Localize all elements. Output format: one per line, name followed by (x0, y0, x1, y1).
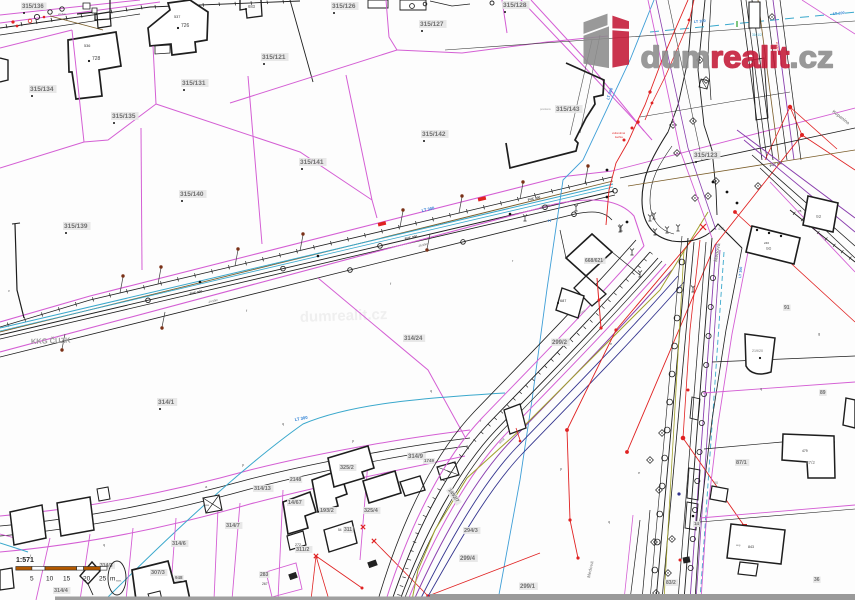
svg-text:90: 90 (766, 246, 772, 252)
svg-text:325/2: 325/2 (340, 465, 354, 471)
svg-text:92: 92 (816, 214, 822, 220)
svg-text:315/126: 315/126 (332, 3, 356, 10)
svg-text:q: q (282, 421, 284, 426)
svg-text:20: 20 (83, 576, 91, 583)
svg-text:314/7: 314/7 (226, 523, 240, 529)
svg-text:311/2: 311/2 (296, 547, 309, 553)
svg-text:726: 726 (181, 23, 190, 29)
svg-text:311: 311 (344, 527, 352, 533)
svg-text:q: q (760, 386, 762, 391)
svg-text:315/141: 315/141 (300, 159, 324, 166)
svg-text:314/24: 314/24 (404, 336, 423, 342)
svg-text:843: 843 (748, 545, 754, 549)
svg-text:3101/2: 3101/2 (752, 33, 762, 37)
svg-text:1749: 1749 (424, 458, 435, 463)
svg-text:87/2: 87/2 (806, 460, 815, 465)
svg-text:povolená: povolená (540, 107, 551, 111)
svg-text:314/1: 314/1 (158, 399, 175, 406)
svg-text:315/134: 315/134 (30, 86, 54, 93)
svg-text:10: 10 (46, 576, 54, 583)
svg-text:14/67: 14/67 (288, 500, 302, 506)
svg-text:315/121: 315/121 (262, 54, 286, 61)
svg-text:537: 537 (174, 15, 180, 19)
svg-text:91: 91 (784, 305, 790, 311)
svg-text:vodoměrná: vodoměrná (612, 131, 626, 135)
svg-text:q: q (608, 519, 610, 524)
svg-text:314/9: 314/9 (408, 454, 424, 460)
svg-text:dumrealit.cz: dumrealit.cz (300, 306, 388, 326)
svg-text:272: 272 (295, 543, 301, 547)
svg-text:vrt.řkm: vrt.řkm (58, 12, 66, 16)
svg-text:83/2: 83/2 (666, 580, 676, 586)
svg-text:89: 89 (820, 390, 826, 396)
svg-text:5: 5 (30, 576, 34, 583)
svg-text:15: 15 (63, 576, 71, 583)
svg-text:315/128: 315/128 (503, 2, 527, 9)
svg-text:2148: 2148 (290, 477, 301, 483)
svg-text:412: 412 (718, 227, 724, 231)
svg-text:78,: 78, (798, 209, 802, 213)
svg-text:šachta: šachta (615, 135, 623, 139)
svg-text:q: q (430, 388, 432, 393)
svg-text:687: 687 (560, 299, 566, 303)
svg-text:479: 479 (802, 449, 808, 453)
svg-text:v: v (8, 289, 10, 293)
svg-text:25: 25 (99, 576, 107, 583)
svg-text:314/4: 314/4 (54, 588, 69, 594)
svg-text:87/1: 87/1 (736, 460, 747, 466)
svg-text:683: 683 (248, 4, 256, 9)
svg-text:aug.: aug. (736, 544, 741, 547)
svg-text:n.m.: n.m. (116, 579, 122, 583)
svg-text:315/139: 315/139 (64, 223, 88, 230)
svg-text:315/136: 315/136 (22, 4, 44, 10)
svg-text:246: 246 (764, 241, 769, 245)
svg-text:948: 948 (175, 575, 183, 580)
svg-text:315/143: 315/143 (556, 106, 580, 113)
svg-text:315/142: 315/142 (422, 131, 446, 138)
svg-text:dumrealit.cz: dumrealit.cz (641, 40, 834, 75)
svg-text:315/140: 315/140 (180, 191, 204, 198)
svg-text:meta: meta (203, 503, 209, 507)
svg-text:60: 60 (714, 481, 718, 485)
svg-text:g: g (818, 331, 820, 336)
svg-text:728: 728 (92, 56, 101, 62)
svg-text:36: 36 (814, 577, 820, 583)
svg-text:54: 54 (338, 528, 342, 532)
svg-text:315/135: 315/135 (112, 113, 136, 120)
svg-text:299/1: 299/1 (520, 584, 536, 590)
svg-text:314/13: 314/13 (254, 486, 271, 492)
svg-text:299/2: 299/2 (552, 340, 568, 346)
svg-text:q: q (103, 542, 105, 547)
svg-text:267: 267 (262, 582, 268, 586)
svg-text:668/621: 668/621 (585, 258, 603, 264)
svg-text:219/20: 219/20 (752, 349, 763, 353)
svg-text:536: 536 (84, 44, 90, 48)
svg-text:325/4: 325/4 (364, 508, 379, 514)
svg-text:193/2: 193/2 (320, 508, 334, 514)
svg-text:315/131: 315/131 (182, 80, 206, 87)
svg-text:q: q (700, 391, 702, 396)
svg-text:315/127: 315/127 (420, 21, 444, 28)
svg-text:1:571: 1:571 (16, 557, 34, 564)
svg-text:307/3: 307/3 (151, 570, 165, 576)
svg-text:294/3: 294/3 (464, 528, 478, 534)
svg-text:315/123: 315/123 (694, 152, 718, 159)
svg-text:299/4: 299/4 (460, 556, 476, 562)
svg-text:KKG ČÚZK: KKG ČÚZK (31, 336, 71, 346)
svg-text:14: 14 (694, 521, 700, 526)
svg-text:283: 283 (260, 572, 269, 578)
svg-text:H: H (548, 218, 551, 223)
svg-text:314/6: 314/6 (172, 541, 186, 547)
svg-text:m: m (110, 576, 115, 583)
